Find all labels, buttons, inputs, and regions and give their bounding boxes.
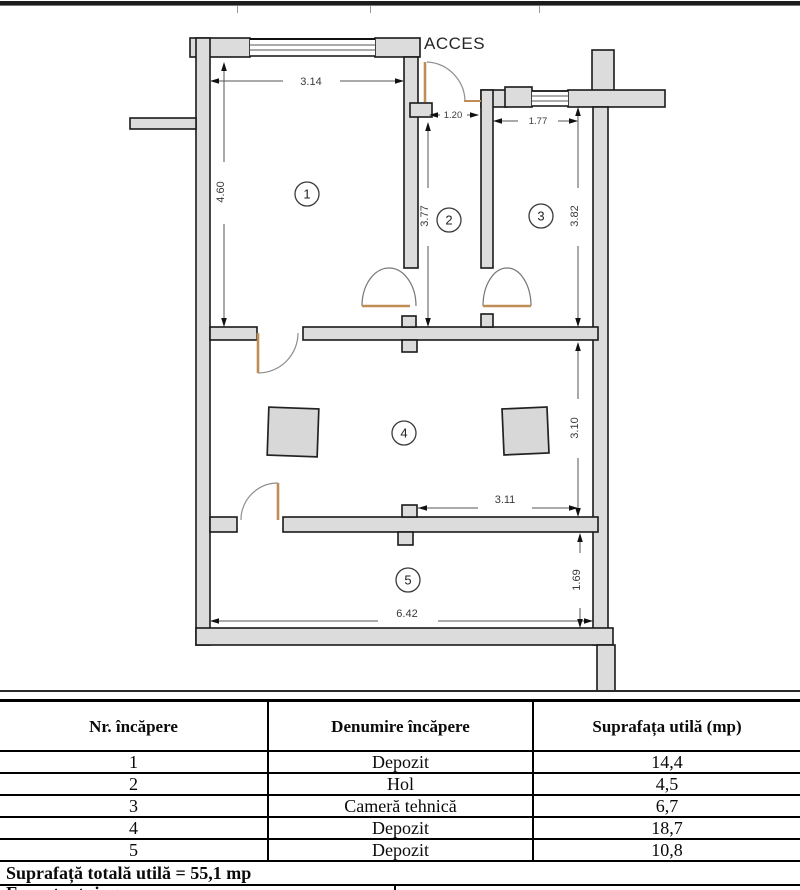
cell-suprafata: 14,4 — [534, 752, 800, 772]
page: { "plan": { "acces_label": "ACCES", "roo… — [0, 0, 800, 890]
dim-arrow — [395, 78, 404, 84]
cell-suprafata: 18,7 — [534, 818, 800, 838]
dim-label-room1-height: 4.60 — [215, 181, 227, 202]
column-pillar — [502, 407, 549, 455]
wall-segment — [130, 118, 196, 129]
dim-label-room4-width: 3.11 — [495, 494, 516, 506]
room-number: 1 — [303, 187, 310, 202]
table-header-nr: Nr. încăpere — [0, 702, 267, 750]
cell-suprafata: 6,7 — [534, 796, 800, 816]
wall-segment — [375, 38, 420, 57]
wall-segment — [402, 340, 417, 352]
dim-arrow — [470, 112, 479, 118]
dim-arrow — [575, 318, 581, 327]
wall-segment — [283, 517, 598, 532]
cell-nr: 1 — [0, 752, 267, 772]
acces-label: ACCES — [424, 34, 485, 53]
dim-arrow — [493, 118, 502, 124]
dim-arrow — [221, 62, 227, 71]
window-room3 — [532, 91, 568, 106]
cell-denumire: Depozit — [269, 840, 532, 860]
wall-segment — [303, 327, 598, 340]
dim-label-room3-height: 3.82 — [569, 205, 581, 226]
door-arc-room1-4 — [258, 333, 298, 373]
wall-segment — [210, 517, 237, 532]
table-top-hairline — [0, 690, 800, 692]
wall-segment — [402, 316, 416, 327]
room-number: 5 — [404, 573, 411, 588]
dim-label-room4-height: 3.10 — [569, 417, 581, 438]
dim-label-room1-width: 3.14 — [300, 76, 321, 88]
cell-suprafata: 4,5 — [534, 774, 800, 794]
cell-denumire: Depozit — [269, 752, 532, 772]
cell-denumire: Depozit — [269, 818, 532, 838]
door-arc-room2 — [362, 268, 416, 306]
cell-denumire: Hol — [269, 774, 532, 794]
walls — [130, 38, 665, 690]
door-arc-room3 — [483, 268, 531, 306]
dim-arrow — [577, 533, 583, 542]
wall-segment — [402, 505, 417, 517]
dim-label-room3-width: 1.77 — [529, 116, 548, 127]
door-arc-acces — [427, 62, 465, 102]
dim-arrow — [221, 318, 227, 327]
dim-arrow — [569, 118, 578, 124]
dim-label-room5-height: 1.69 — [571, 569, 583, 590]
wall-segment — [481, 314, 493, 327]
total-row: Suprafață totală utilă = 55,1 mp — [0, 862, 800, 884]
wall-segment — [210, 327, 257, 340]
wall-segment — [398, 532, 413, 545]
dim-arrow — [425, 122, 431, 131]
footer-partial-divider — [394, 886, 396, 890]
footer-partial-text: Executant: ing. — [6, 886, 123, 890]
cell-nr: 2 — [0, 774, 267, 794]
room-number: 2 — [445, 213, 452, 228]
dim-arrow — [575, 508, 581, 517]
cell-nr: 5 — [0, 840, 267, 860]
wall-segment — [505, 87, 532, 107]
cell-denumire: Cameră tehnică — [269, 796, 532, 816]
wall-segment — [196, 38, 210, 645]
window-room1 — [250, 39, 375, 56]
cell-nr: 4 — [0, 818, 267, 838]
wall-segment — [568, 90, 665, 107]
window-glass — [250, 39, 375, 56]
wall-segment — [196, 628, 613, 645]
cell-suprafata: 10,8 — [534, 840, 800, 860]
column-pillar — [267, 407, 319, 457]
dim-arrow — [577, 619, 583, 628]
room-number: 4 — [400, 426, 407, 441]
dim-arrow — [584, 618, 593, 624]
floor-plan: 3.14 4.60 1.20 3.77 1.77 3.82 3.10 3.11 … — [0, 0, 800, 690]
wall-segment — [593, 107, 608, 645]
room-number: 3 — [537, 209, 544, 224]
wall-segment — [410, 103, 432, 117]
dim-label-hall-width: 1.20 — [444, 110, 463, 121]
dim-label-room5-width: 6.42 — [396, 608, 417, 620]
dim-arrow — [210, 78, 219, 84]
dim-arrow — [425, 318, 431, 327]
table-header-suprafata: Suprafața utilă (mp) — [534, 702, 800, 750]
door-arc-room4-5 — [241, 483, 278, 520]
footer-partial-row: Executant: ing. — [0, 886, 800, 890]
cell-nr: 3 — [0, 796, 267, 816]
dim-arrow — [575, 107, 581, 116]
dim-arrow — [418, 505, 427, 511]
wall-segment — [592, 50, 614, 91]
dim-arrow — [575, 342, 581, 351]
dim-label-hall-height: 3.77 — [419, 205, 431, 226]
window-glass — [532, 91, 568, 106]
dim-arrow — [210, 618, 219, 624]
wall-segment — [481, 90, 493, 268]
wall-segment — [404, 57, 418, 268]
wall-segment — [597, 645, 615, 690]
table-header-denumire: Denumire încăpere — [269, 702, 532, 750]
